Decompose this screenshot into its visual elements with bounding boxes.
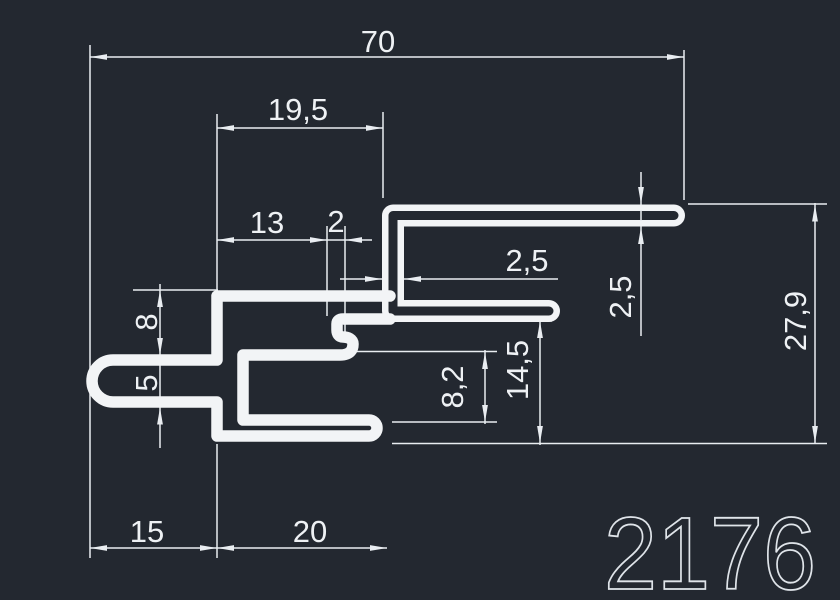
dim-arm-thickness-label: 2,5 <box>603 275 638 318</box>
cad-canvas: 70 19,5 13 2 2,5 15 20 8 5 8,2 14,5 2,5 … <box>0 0 840 600</box>
dim-total-height-label: 27,9 <box>778 291 813 351</box>
dim-slot-height-label: 5 <box>129 374 164 391</box>
dim-left-arm-length-label: 15 <box>130 514 164 549</box>
dim-wall-thickness-label: 2,5 <box>505 243 548 278</box>
dim-hook-offset-label: 13 <box>250 205 284 240</box>
dim-lower-height-label: 14,5 <box>500 340 535 400</box>
dim-cavity-height-label: 8,2 <box>435 365 470 408</box>
dim-total-width-label: 70 <box>361 24 395 59</box>
dim-bottom-arm-length-label: 20 <box>293 514 327 549</box>
dim-step-height-label: 8 <box>129 313 164 330</box>
part-number-label: 2176 <box>604 496 816 600</box>
dim-top-arm-offset-label: 19,5 <box>268 92 328 127</box>
dim-hook-gap-label: 2 <box>327 204 344 239</box>
technical-drawing: 70 19,5 13 2 2,5 15 20 8 5 8,2 14,5 2,5 … <box>0 0 840 600</box>
